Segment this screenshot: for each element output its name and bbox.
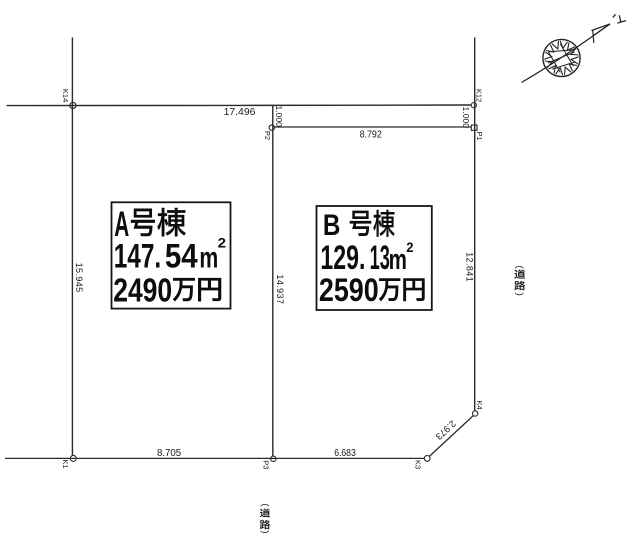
svg-text:B: B — [323, 209, 341, 242]
svg-text:6.683: 6.683 — [334, 448, 356, 459]
svg-text:P3: P3 — [262, 460, 271, 469]
svg-text:P1: P1 — [475, 131, 484, 140]
svg-text:2: 2 — [218, 236, 227, 251]
svg-text:2490: 2490 — [113, 272, 172, 309]
svg-text:): ) — [514, 293, 525, 296]
svg-text:2: 2 — [406, 240, 413, 255]
svg-text:K3: K3 — [414, 460, 423, 469]
svg-text:2590: 2590 — [319, 272, 379, 308]
svg-text:8.792: 8.792 — [360, 129, 382, 140]
svg-text:147.: 147. — [114, 237, 162, 275]
svg-text:): ) — [259, 530, 270, 533]
svg-text:14.937: 14.937 — [275, 274, 285, 304]
svg-text:1.000: 1.000 — [274, 105, 284, 127]
svg-text:K4: K4 — [475, 401, 484, 410]
svg-text:8.705: 8.705 — [157, 448, 182, 459]
svg-text:K1: K1 — [61, 460, 70, 469]
svg-text:K14: K14 — [61, 89, 70, 102]
svg-text:54: 54 — [165, 237, 198, 275]
svg-text:P2: P2 — [263, 131, 272, 140]
svg-text:m: m — [389, 244, 407, 276]
svg-text:17.496: 17.496 — [224, 107, 256, 118]
svg-text:m: m — [199, 241, 218, 274]
svg-text:12.841: 12.841 — [464, 252, 474, 282]
svg-text:15.945: 15.945 — [74, 263, 84, 293]
svg-text:K12: K12 — [474, 89, 483, 102]
svg-text:1.000: 1.000 — [461, 107, 471, 129]
